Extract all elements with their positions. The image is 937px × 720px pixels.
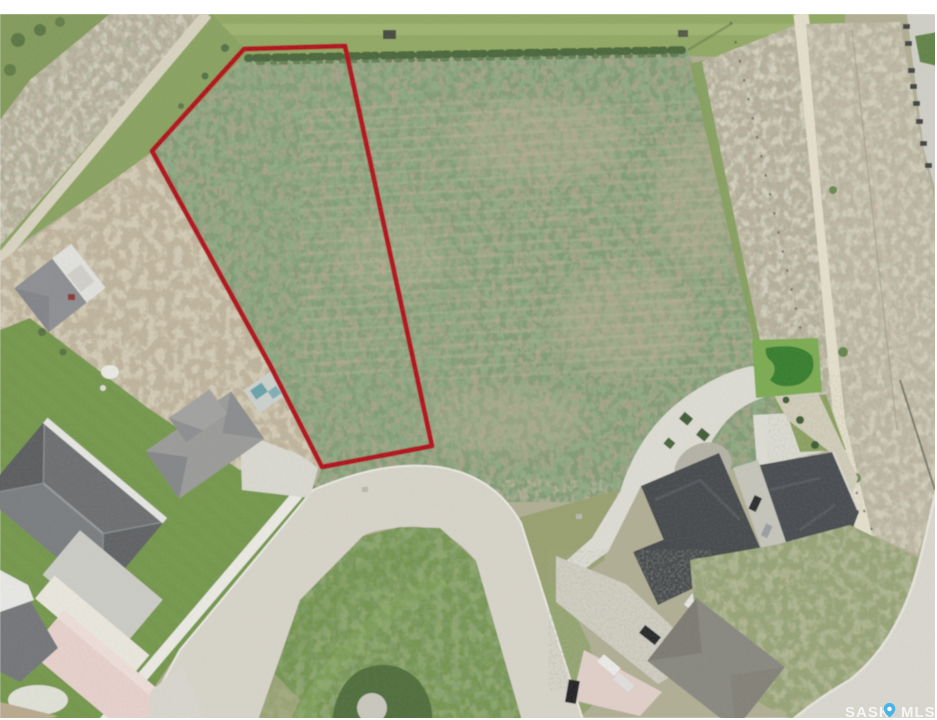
svg-text:SASK: SASK [845,704,891,720]
svg-text:MLS: MLS [901,704,936,720]
